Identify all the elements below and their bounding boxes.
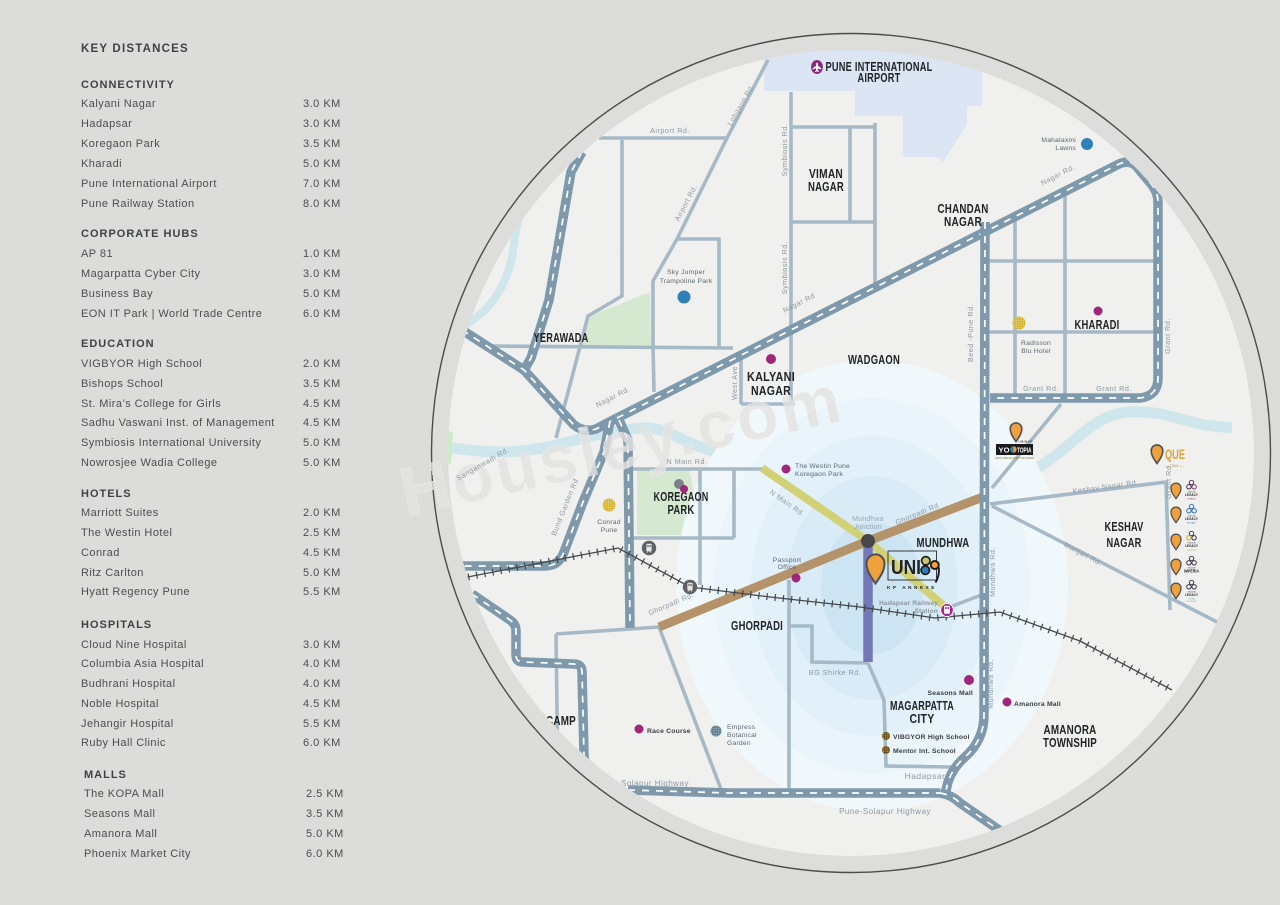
svg-text:N Main Rd.: N Main Rd. (667, 457, 708, 466)
svg-text:TOPIA: TOPIA (1017, 446, 1032, 455)
svg-text:Passport: Passport (773, 557, 801, 564)
svg-text:West Ave: West Ave (730, 366, 739, 400)
svg-text:Grant Rd.: Grant Rd. (1023, 384, 1059, 393)
svg-text:Mundhwa Rd.: Mundhwa Rd. (986, 659, 995, 709)
svg-text:WADGAON: WADGAON (848, 353, 900, 367)
svg-text:Symbiosis Rd.: Symbiosis Rd. (780, 124, 789, 176)
svg-text:Koregaon Park: Koregaon Park (795, 471, 843, 478)
svg-text:Amanora Mall: Amanora Mall (1014, 701, 1061, 708)
svg-text:KALYANI: KALYANI (747, 370, 795, 384)
svg-text:Pune-Solapur Highway: Pune-Solapur Highway (839, 807, 931, 816)
svg-text:Empress: Empress (727, 724, 756, 731)
svg-text:Junction: Junction (854, 524, 882, 531)
svg-text:TOTAL: TOTAL (1188, 597, 1196, 600)
svg-text:VIBGYOR High School: VIBGYOR High School (893, 734, 970, 741)
svg-text:Hadapsar: Hadapsar (905, 771, 946, 781)
svg-text:GHORPADI: GHORPADI (731, 619, 783, 633)
svg-text:Mahalaxmi: Mahalaxmi (1041, 137, 1076, 144)
svg-text:Office: Office (778, 564, 797, 571)
svg-text:BY UNIQUE: BY UNIQUE (1187, 601, 1198, 603)
svg-text:Airport Rd.: Airport Rd. (650, 126, 690, 135)
svg-text:MAGARPATTA: MAGARPATTA (890, 699, 954, 713)
svg-text:NAGAR: NAGAR (1107, 536, 1142, 550)
svg-text:LEGACY: LEGACY (1185, 543, 1198, 548)
svg-text:NAGAR: NAGAR (808, 180, 844, 194)
svg-text:KESHAV: KESHAV (1105, 520, 1144, 534)
svg-text:KHARADI: KHARADI (1075, 318, 1120, 332)
svg-text:NAGAR: NAGAR (944, 215, 982, 229)
svg-text:LEGACY: LEGACY (1185, 516, 1198, 521)
svg-text:YO: YO (999, 446, 1010, 455)
svg-text:AMANORA: AMANORA (1044, 723, 1097, 737)
svg-text:UNIQUE: UNIQUE (1018, 440, 1033, 444)
svg-text:YERAWADA: YERAWADA (534, 331, 589, 345)
svg-text:QUE: QUE (1165, 446, 1185, 462)
svg-text:Trampoline Park: Trampoline Park (660, 278, 713, 285)
svg-text:— 914 —: — 914 — (1167, 463, 1184, 468)
svg-text:KOREGAON: KOREGAON (654, 490, 709, 504)
svg-text:Beed -Pune Rd.: Beed -Pune Rd. (966, 304, 975, 362)
svg-text:Grant Rd.: Grant Rd. (1164, 463, 1173, 499)
svg-text:Conrad: Conrad (597, 519, 621, 526)
svg-text:Station: Station (915, 608, 938, 615)
svg-text:Race Course: Race Course (647, 728, 691, 735)
svg-text:Lawns: Lawns (1055, 145, 1076, 152)
svg-text:Hadapsar Railway: Hadapsar Railway (879, 600, 938, 607)
svg-text:Grant Rd.: Grant Rd. (1163, 318, 1172, 354)
svg-text:IMPERIA: IMPERIA (1184, 569, 1199, 574)
svg-text:CELESTE: CELESTE (1187, 549, 1198, 551)
svg-text:PARK: PARK (668, 503, 695, 517)
svg-text:MUNDHWA: MUNDHWA (917, 536, 970, 550)
svg-text:Mundhwa Rd.: Mundhwa Rd. (988, 547, 997, 597)
svg-text:GRAND: GRAND (1188, 497, 1196, 500)
svg-text:Sky Jumper: Sky Jumper (667, 269, 705, 276)
svg-text:Seasons Mall: Seasons Mall (928, 690, 973, 697)
svg-text:Botanical: Botanical (727, 732, 757, 739)
svg-text:KP ANNEXE: KP ANNEXE (887, 585, 937, 590)
svg-text:UNI: UNI (891, 557, 921, 579)
svg-text:LEGACY: LEGACY (1185, 592, 1198, 597)
svg-text:Radisson: Radisson (1021, 340, 1051, 347)
svg-text:ROYALE: ROYALE (1187, 521, 1196, 524)
svg-text:NAGAR: NAGAR (751, 384, 791, 398)
svg-text:AIRPORT: AIRPORT (858, 71, 901, 85)
svg-text:BG Shirke Rd.: BG Shirke Rd. (809, 668, 861, 677)
svg-text:VIMAN: VIMAN (809, 167, 843, 181)
svg-text:Garden: Garden (727, 740, 751, 747)
svg-text:Symbiosis Rd.: Symbiosis Rd. (780, 242, 789, 294)
svg-text:LEGACY: LEGACY (1185, 492, 1198, 497)
svg-text:Pune: Pune (601, 527, 618, 534)
svg-text:Grant Rd.: Grant Rd. (1096, 384, 1132, 393)
svg-text:CHANDAN: CHANDAN (938, 202, 989, 216)
svg-text:Mentor Int. School: Mentor Int. School (893, 748, 956, 755)
svg-text:The Westin Pune: The Westin Pune (795, 463, 850, 470)
svg-text:Blu Hotel: Blu Hotel (1021, 348, 1051, 355)
svg-text:CITY: CITY (910, 712, 935, 726)
svg-text:Mundhwa: Mundhwa (852, 516, 884, 523)
svg-text:TOWNSHIP: TOWNSHIP (1043, 736, 1097, 750)
svg-text:PARK AVENUE LIFESTYLE URBAN: PARK AVENUE LIFESTYLE URBAN (995, 457, 1034, 460)
